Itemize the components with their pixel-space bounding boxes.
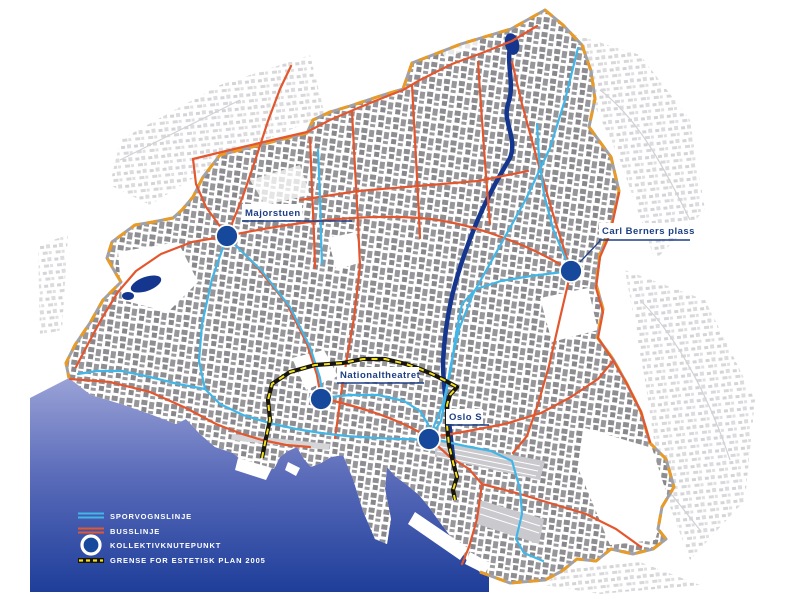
- svg-text:Oslo S: Oslo S: [449, 412, 482, 423]
- svg-text:SPORVOGNSLINJE: SPORVOGNSLINJE: [110, 512, 192, 521]
- svg-text:KOLLEKTIVKNUTEPUNKT: KOLLEKTIVKNUTEPUNKT: [110, 541, 221, 550]
- transit-map: Majorstuen Carl Berners plass Nationalth…: [0, 0, 800, 598]
- hub-label-nationaltheatret: Nationaltheatret: [337, 367, 424, 383]
- svg-text:Majorstuen: Majorstuen: [245, 208, 301, 219]
- svg-text:Nationaltheatret: Nationaltheatret: [340, 370, 421, 381]
- built-area: [38, 235, 68, 335]
- hub-label-oslo-s: Oslo S: [446, 409, 489, 425]
- hub-marker-nationaltheatret: [310, 388, 332, 410]
- hub-circle-swatch-icon: [82, 536, 100, 554]
- frogner-pond-small: [122, 292, 134, 300]
- hub-marker-oslo-s: [418, 428, 440, 450]
- map-canvas: Majorstuen Carl Berners plass Nationalth…: [0, 0, 800, 598]
- svg-text:BUSSLINJE: BUSSLINJE: [110, 527, 160, 536]
- plan-boundary-swatch-icon: [78, 558, 104, 563]
- hub-marker-carl-berners-plass: [560, 260, 582, 282]
- svg-text:Carl Berners plass: Carl Berners plass: [602, 226, 695, 237]
- hub-marker-majorstuen: [216, 225, 238, 247]
- svg-text:GRENSE FOR ESTETISK PLAN 2005: GRENSE FOR ESTETISK PLAN 2005: [110, 556, 266, 565]
